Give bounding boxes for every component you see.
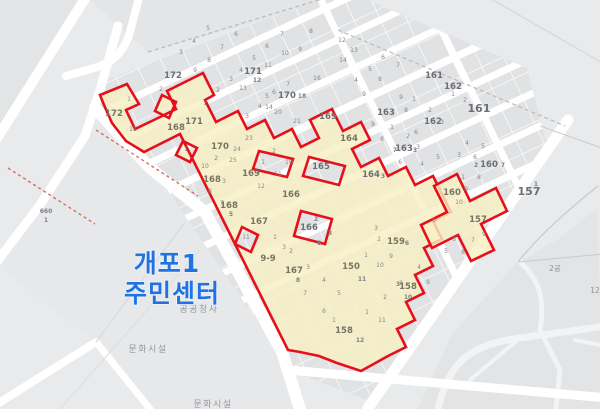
parcel-number-label: 160 — [480, 160, 498, 170]
parcel-number-label: 10 — [285, 159, 293, 166]
cadastral-map: 1721711217018169163716331621621611612160… — [0, 0, 600, 409]
parcel-number-label: 1 — [203, 100, 207, 107]
parcel-number-label: 8 — [380, 136, 384, 143]
parcel-number-label: 12 — [590, 286, 600, 295]
parcel-number-label: 4 — [420, 161, 424, 168]
parcel-number-label: 10 — [376, 262, 384, 269]
parcel-number-label: 11 — [274, 171, 282, 178]
parcel-number-label: 12 — [356, 337, 364, 344]
parcel-number-label: 2 — [314, 216, 318, 223]
map-canvas[interactable]: 1721711217018169163716331621621611612160… — [0, 0, 600, 409]
parcel-number-label: 2 — [383, 294, 387, 301]
parcel-number-label: 1 — [451, 91, 455, 98]
parcel-number-label: 6 — [405, 240, 409, 247]
parcel-number-label: 16 — [313, 75, 321, 82]
parcel-number-label: 6 — [381, 54, 385, 61]
parcel-number-label: 163 — [395, 144, 413, 154]
parcel-number-label: 11 — [378, 317, 386, 324]
parcel-number-label: 4 — [354, 77, 358, 84]
parcel-number-label: 172 — [105, 109, 123, 119]
parcel-number-label: 6 — [432, 217, 436, 224]
parcel-number-label: 3 — [282, 244, 286, 251]
parcel-number-label: 9 — [362, 91, 366, 98]
parcel-number-label: 3 — [416, 144, 420, 151]
parcel-number-label: 3 — [306, 264, 310, 271]
parcel-number-label: 7 — [220, 200, 224, 207]
parcel-number-label: 2 — [216, 87, 220, 94]
parcel-number-label: 6 — [398, 159, 402, 166]
parcel-number-label: 2 — [474, 162, 478, 169]
parcel-number-label: 5 — [436, 154, 440, 161]
parcel-number-label: 1 — [365, 309, 369, 316]
parcel-number-label: 10 — [404, 294, 412, 301]
parcel-number-label: 14 — [339, 57, 347, 64]
parcel-number-label: 4 — [417, 264, 421, 271]
parcel-number-label: 660 — [40, 208, 53, 215]
parcel-number-label: 10 — [455, 199, 463, 206]
parcel-number-label: 7 — [286, 81, 290, 88]
parcel-number-label: 2 — [406, 133, 410, 140]
parcel-number-label: 23 — [245, 135, 253, 142]
parcel-number-label: 2 — [428, 107, 432, 114]
parcel-number-label: 2 — [377, 236, 381, 243]
parcel-number-label: 4 — [239, 67, 243, 74]
parcel-number-label: 6 — [272, 89, 276, 96]
parcel-number-label: 6 — [317, 240, 321, 247]
parcel-number-label: 12 — [338, 37, 346, 44]
parcel-number-label: 172 — [164, 71, 182, 81]
parcel-number-label: 9 — [399, 94, 403, 101]
parcel-number-label: 6 — [322, 308, 326, 315]
parcel-number-label: 3 — [328, 230, 332, 237]
parcel-number-label: 3 — [440, 119, 444, 126]
parcel-number-label: 13 — [350, 47, 358, 54]
parcel-number-label: 8 — [378, 76, 382, 83]
parcel-number-label: 2 — [272, 148, 276, 155]
parcel-number-label: 7 — [396, 62, 400, 69]
parcel-number-label: 2 — [289, 248, 293, 255]
parcel-number-label: 167 — [250, 217, 268, 227]
parcel-number-label: 159 — [387, 237, 405, 247]
parcel-number-label: 5 — [368, 66, 372, 73]
parcel-number-label: 150 — [342, 262, 360, 272]
parcel-number-label: 10 — [201, 163, 209, 170]
landmark-label-line1[interactable]: 개포1 — [134, 249, 200, 278]
parcel-number-label: 3 — [229, 76, 233, 83]
parcel-number-label: 1 — [184, 146, 188, 153]
parcel-number-label: 7 — [280, 31, 284, 38]
parcel-number-label: 11 — [358, 276, 366, 283]
parcel-number-label: 21 — [293, 118, 301, 125]
parcel-number-label: 13 — [239, 85, 247, 92]
parcel-number-label: 169 — [242, 169, 260, 179]
parcel-number-label: 5 — [337, 290, 341, 297]
parcel-number-label: 161 — [425, 71, 443, 81]
facility-label-cultural-2: 문화시설 — [193, 399, 232, 409]
parcel-number-label: 1 — [364, 252, 368, 259]
parcel-number-label: 3 — [457, 152, 461, 159]
parcel-number-label: 160 — [443, 188, 461, 198]
parcel-number-label: 168 — [203, 175, 221, 185]
parcel-number-label: 1 — [534, 181, 538, 188]
parcel-number-label: 8 — [477, 174, 481, 181]
parcel-number-label: 7 — [471, 237, 475, 244]
parcel-number-label: 3 — [381, 173, 385, 180]
parcel-number-label: 12 — [253, 77, 261, 84]
parcel-number-label: 2 — [463, 97, 467, 104]
parcel-number-label: 3 — [222, 178, 226, 185]
parcel-number-label: 1 — [461, 174, 465, 181]
parcel-number-label: 1 — [390, 124, 394, 131]
facility-label-cultural-1: 문화시설 — [128, 344, 167, 355]
parcel-number-label: 10 — [281, 50, 289, 57]
parcel-number-label: 9 — [298, 46, 302, 53]
parcel-number-label: 2 — [159, 86, 163, 93]
parcel-number-label: 7 — [220, 44, 224, 51]
parcel-number-label: 171 — [244, 67, 262, 77]
parcel-number-label: 2 — [214, 155, 218, 162]
parcel-number-label: 165 — [312, 162, 330, 172]
parcel-number-label: 1 — [273, 234, 277, 241]
parcel-number-label: 8 — [461, 249, 465, 256]
parcel-number-label: 8 — [208, 188, 212, 195]
parcel-number-label: 157 — [469, 215, 487, 225]
parcel-number-label: 7 — [501, 162, 505, 169]
parcel-number-label: 25 — [229, 157, 237, 164]
parcel-number-label: 20 — [274, 109, 282, 116]
parcel-number-label: 163 — [377, 108, 395, 118]
parcel-number-label: 9 — [193, 67, 197, 74]
parcel-number-label: 1 — [127, 96, 131, 103]
parcel-number-label: 9 — [371, 121, 375, 128]
parcel-number-label: 3 — [245, 113, 249, 120]
parcel-number-label: 9-9 — [260, 254, 275, 264]
parcel-number-label: 6 — [265, 43, 269, 50]
landmark-label-line2[interactable]: 주민센터 — [124, 279, 220, 308]
parcel-number-label: 166 — [282, 190, 300, 200]
parcel-number-label: 4 — [465, 140, 469, 147]
parcel-number-label: 5 — [481, 143, 485, 150]
parcel-number-label: 5 — [265, 93, 269, 100]
parcel-number-label: 11 — [129, 126, 137, 133]
parcel-number-label: 170 — [211, 142, 229, 152]
parcel-number-label: 3 — [374, 225, 378, 232]
parcel-number-label: 3 — [399, 280, 403, 287]
parcel-number-label: 5 — [444, 248, 448, 255]
parcel-number-label: 1 — [332, 317, 336, 324]
parcel-number-label: 1 — [44, 217, 48, 224]
parcel-number-label: 11 — [264, 62, 272, 69]
parcel-number-label: 9 — [464, 186, 468, 193]
parcel-number-label: 5 — [206, 25, 210, 32]
parcel-number-label: 171 — [185, 117, 203, 127]
parcel-number-label: 167 — [285, 266, 303, 276]
parcel-number-label: 164 — [362, 170, 380, 180]
parcel-number-label: 4 — [258, 103, 262, 110]
parcel-number-label: 8 — [309, 28, 313, 35]
parcel-number-label: 6 — [414, 129, 418, 136]
parcel-number-label: 170 — [278, 91, 296, 101]
parcel-number-label: 6 — [473, 154, 477, 161]
parcel-number-label: 9 — [482, 231, 486, 238]
parcel-number-label: 164 — [340, 134, 358, 144]
parcel-number-label: 168 — [167, 123, 185, 133]
parcel-number-label: 7 — [303, 290, 307, 297]
parcel-number-label: 5 — [229, 211, 233, 218]
parcel-number-label: 166 — [300, 223, 318, 233]
parcel-number-label: 3 — [179, 49, 183, 56]
parcel-number-label: 161 — [468, 102, 491, 115]
parcel-number-label: 1 — [412, 96, 416, 103]
parcel-number-label: 6 — [452, 236, 456, 243]
parcel-number-label: 5 — [252, 55, 256, 62]
parcel-number-label: 1 — [261, 159, 265, 166]
parcel-number-label: 18 — [298, 93, 306, 100]
parcel-number-label: 4 — [192, 38, 196, 45]
parcel-number-label: 4 — [322, 277, 326, 284]
parcel-number-label: 6 — [234, 31, 238, 38]
parcel-number-label: 8 — [207, 57, 211, 64]
parcel-number-label: 2공 — [549, 264, 561, 273]
parcel-number-label: 169 — [319, 112, 337, 122]
parcel-number-label: 12 — [257, 183, 265, 190]
parcel-number-label: 9 — [389, 253, 393, 260]
parcel-number-label: 8 — [296, 277, 300, 284]
parcel-number-label: 8 — [404, 107, 408, 114]
parcel-number-label: 158 — [335, 326, 353, 336]
parcel-number-label: 9 — [426, 279, 430, 286]
parcel-number-label: 14 — [265, 104, 273, 111]
parcel-number-label: 11 — [242, 234, 250, 241]
parcel-number-label: 24 — [233, 146, 241, 153]
